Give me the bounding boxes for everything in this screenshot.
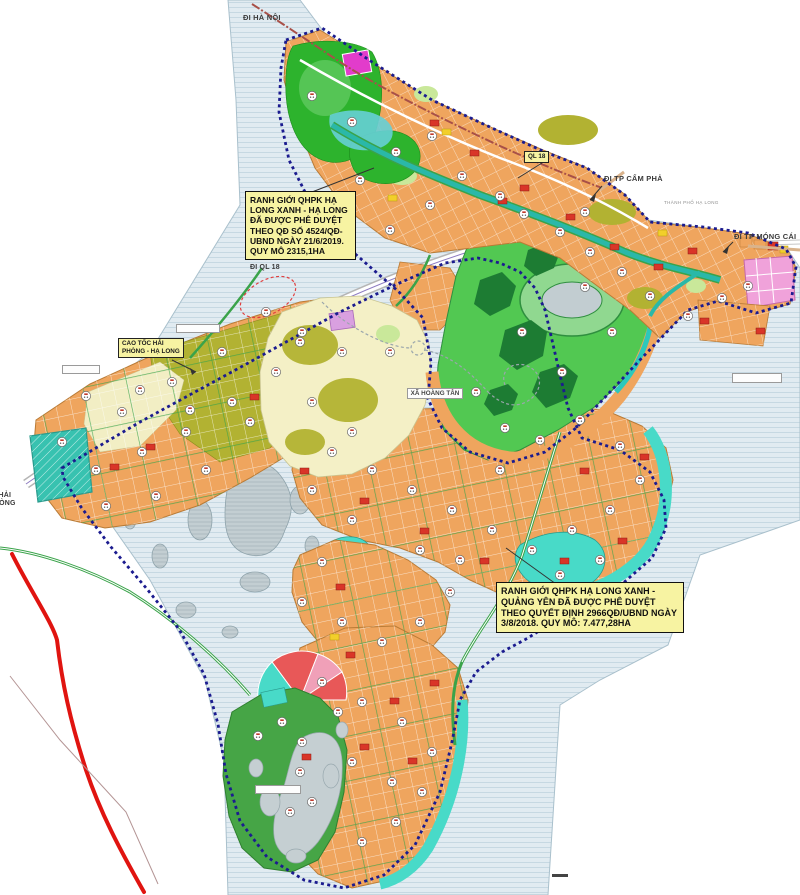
lot-marker [347,515,356,524]
lot-marker [297,597,306,606]
service-block [442,129,451,135]
lot-marker [607,327,616,336]
info-box-quang-yen: RANH GIỚI QHPK HẠ LONG XANH - QUẢNG YÊN … [496,582,684,633]
lot-marker [527,545,536,554]
lot-marker [307,91,316,100]
lot-marker [385,347,394,356]
lot-marker [245,417,254,426]
lot-marker [261,307,270,316]
lot-marker [487,525,496,534]
lot-marker [317,557,326,566]
road-label-di-ql-18: ĐI QL 18 [250,264,280,271]
commercial-block [610,244,619,250]
lot-marker [417,787,426,796]
lot-marker [333,707,342,716]
lot-marker [317,677,326,686]
lot-marker [427,747,436,756]
lot-marker [81,391,90,400]
lot-marker [297,327,306,336]
lot-marker [357,837,366,846]
lot-marker [645,291,654,300]
service-block [658,230,667,236]
commercial-block [580,468,589,474]
road-label-small [732,373,782,383]
lot-marker [585,247,594,256]
lot-marker [595,555,604,564]
commercial-block [470,150,479,156]
city-label-ha-long: THÀNH PHỐ HẠ LONG [664,200,719,205]
lot-marker [580,207,589,216]
road-label-small [255,785,301,794]
lot-marker [137,447,146,456]
lot-marker [337,617,346,626]
lot-marker [415,617,424,626]
thin-brown-line [10,676,158,884]
road-label-di-hai-phong: ĐI HẢI PHÒNG [0,492,39,508]
lot-marker [377,637,386,646]
lot-marker [347,117,356,126]
lot-marker [567,525,576,534]
commercial-block [360,498,369,504]
lot-marker [387,777,396,786]
lot-marker [227,397,236,406]
lot-marker [307,397,316,406]
label-cao-toc-box: CAO TỐC HẢI PHÒNG - HẠ LONG [118,338,184,358]
commercial-block [390,698,399,704]
lot-marker [605,505,614,514]
commercial-block [618,538,627,544]
lot-marker [307,485,316,494]
commercial-block [756,328,765,334]
lot-marker [307,797,316,806]
lot-marker [391,147,400,156]
road-label-di-ha-noi: ĐI HÀ NỘI [243,13,281,22]
lot-marker [557,367,566,376]
lot-marker [447,505,456,514]
lot-marker [397,717,406,726]
lot-marker [91,465,100,474]
lot-marker [471,387,480,396]
commercial-block [300,468,309,474]
commercial-block [654,264,663,270]
lot-marker [717,293,726,302]
lot-marker [185,405,194,414]
lot-marker [445,587,454,596]
road-label-small [62,365,100,374]
lot-marker [167,377,176,386]
road-label-di-tp-mong-cai: ĐI TP MÓNG CÁI [734,232,796,241]
label-xa-hoang-tan-box: XÃ HOÀNG TÂN [407,388,463,399]
red-boundary-line [12,554,144,892]
lot-marker [743,281,752,290]
lot-marker [181,427,190,436]
lot-marker [151,491,160,500]
service-block [330,634,339,640]
commercial-block [700,318,709,324]
commercial-block [336,584,345,590]
commercial-block [520,185,529,191]
lot-marker [271,367,280,376]
lot-marker [135,385,144,394]
road-label-di-tp-cam-pha: ĐI TP CẨM PHẢ [604,174,663,183]
lot-marker [407,485,416,494]
lot-marker [385,225,394,234]
lot-marker [347,757,356,766]
lot-marker [101,501,110,510]
commercial-block [346,652,355,658]
lot-marker [517,327,526,336]
lot-marker [683,311,692,320]
lot-marker [425,200,434,209]
commercial-block [360,744,369,750]
commercial-block [110,464,119,470]
commercial-block [566,214,575,220]
commercial-block [420,528,429,534]
commercial-block [560,558,569,564]
lot-marker [457,171,466,180]
lot-marker [555,227,564,236]
lot-marker [427,131,436,140]
lot-marker [580,282,589,291]
commercial-block [640,454,649,460]
lot-marker [391,817,400,826]
lot-marker [575,415,584,424]
commercial-block [250,394,259,400]
commercial-block [430,120,439,126]
scale-mark [552,874,568,877]
lot-marker [337,347,346,356]
commercial-block [430,680,439,686]
lot-marker [500,423,509,432]
lot-marker [455,555,464,564]
service-block [388,195,397,201]
commercial-block [302,754,311,760]
map-canvas [0,0,800,895]
lot-marker [217,347,226,356]
lot-marker [495,191,504,200]
master-plan-map: ĐI HÀ NỘI ĐI TP CẨM PHẢ ĐI TP MÓNG CÁI Đ… [0,0,800,895]
lot-marker [277,717,286,726]
lot-marker [635,475,644,484]
lot-marker [297,737,306,746]
commercial-block [480,558,489,564]
commercial-block [146,444,155,450]
lot-marker [495,465,504,474]
road-label-small [176,324,220,333]
lot-marker [415,545,424,554]
lot-marker [117,407,126,416]
lot-marker [617,267,626,276]
lot-marker [347,427,356,436]
lot-marker [357,697,366,706]
lot-marker [201,465,210,474]
info-box-ha-long: RANH GIỚI QHPK HẠ LONG XANH - HẠ LONG ĐÃ… [245,191,356,260]
commercial-block [688,248,697,254]
lot-marker [535,435,544,444]
lot-marker [555,570,564,579]
lot-marker [355,175,364,184]
label-ql18-box: QL 18 [524,151,549,163]
lot-marker [615,441,624,450]
lot-marker [327,447,336,456]
lot-marker [57,437,66,446]
lot-marker [295,337,304,346]
lot-marker [253,731,262,740]
lot-marker [367,465,376,474]
lot-marker [285,807,294,816]
lot-marker [295,767,304,776]
commercial-block [408,758,417,764]
lot-marker [519,209,528,218]
